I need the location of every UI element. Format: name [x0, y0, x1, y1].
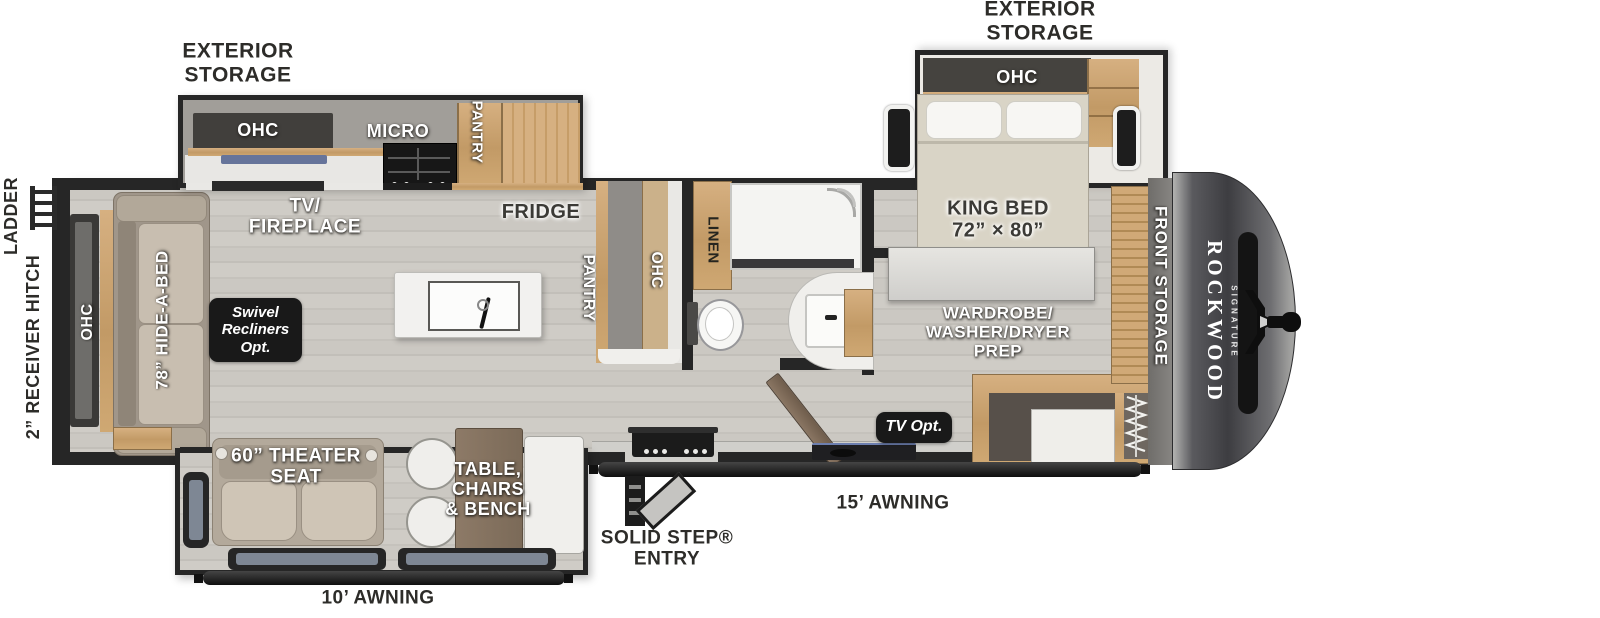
label-dinette: TABLE, CHAIRS & BENCH	[445, 459, 531, 519]
label-kitchen-ohc: OHC	[237, 120, 279, 140]
pillow	[926, 101, 1002, 139]
label-pantry: PANTRY	[468, 101, 485, 164]
label-fridge: FRIDGE	[502, 201, 581, 223]
label-awning-main: 15’ AWNING	[836, 492, 949, 513]
label-hide-a-bed: 78” HIDE-A-BED	[152, 250, 171, 389]
coil-cubby	[1124, 393, 1148, 459]
brand-rockwood: ROCKWOOD	[1202, 240, 1226, 404]
medicine-cabinet	[844, 289, 873, 357]
vanity-sink	[805, 294, 849, 348]
wardrobe-unit	[888, 247, 1095, 301]
awning-main-bracket	[589, 465, 598, 474]
sofa-back	[118, 221, 136, 426]
slide-window-left	[183, 472, 209, 548]
front-storage-cabinet	[1111, 186, 1150, 384]
range-front	[383, 183, 452, 190]
label-rear-ohc: OHC	[79, 303, 97, 340]
exterior-griddle	[632, 429, 714, 457]
shower-glass-door	[732, 259, 854, 268]
label-wardrobe: WARDROBE/ WASHER/DRYER PREP	[926, 303, 1070, 360]
label-awning-rear: 10’ AWNING	[321, 587, 434, 608]
fridge-front	[452, 183, 583, 190]
swivel-recliners-badge: Swivel Recliners Opt.	[209, 298, 302, 362]
galley-white-edge	[668, 181, 682, 363]
ladder-icon	[30, 186, 57, 230]
spring-icon	[1124, 393, 1148, 459]
label-micro: MICRO	[367, 121, 430, 141]
awning-main-bracket	[1141, 465, 1150, 474]
slide-window-bottom-left	[228, 548, 386, 570]
label-front-storage: FRONT STORAGE	[1151, 206, 1170, 366]
island-faucet-base	[477, 299, 489, 311]
label-exterior-storage-front: EXTERIOR STORAGE	[984, 0, 1095, 45]
label-entry: SOLID STEP® ENTRY	[601, 528, 733, 571]
kitchen-island	[394, 272, 542, 338]
label-theater-seat: 60” THEATER SEAT	[231, 446, 361, 489]
awning-rear-bar	[203, 571, 565, 585]
fridge-cabinet	[501, 103, 580, 185]
vanity-faucet	[825, 315, 837, 320]
toilet-bowl	[697, 299, 744, 351]
galley-counter	[608, 181, 642, 363]
pillow	[1006, 101, 1082, 139]
galley-end-cap	[598, 349, 680, 364]
range-grate-line	[388, 171, 450, 173]
label-linen: LINEN	[704, 216, 721, 264]
label-bedroom-ohc: OHC	[996, 67, 1038, 87]
label-tv-fireplace: TV/ FIREPLACE	[249, 196, 361, 239]
bedroom-window-right	[1113, 106, 1140, 170]
tv-fireplace-unit	[212, 181, 324, 191]
front-dresser	[972, 374, 1150, 464]
tv-stand	[830, 449, 856, 457]
awning-rear-bracket	[194, 574, 203, 583]
wall-top-rear	[62, 178, 180, 190]
kitchen-slide	[178, 95, 583, 188]
awning-rear-bracket	[564, 574, 573, 583]
toilet-seat	[705, 307, 734, 341]
rear-end-table	[113, 427, 172, 450]
kitchen-sink	[221, 155, 327, 164]
label-receiver-hitch: 2” RECEIVER HITCH	[23, 255, 43, 440]
dresser-drawer	[1031, 409, 1115, 463]
floorplan: Swivel Recliners Opt.	[0, 0, 1600, 618]
tv-opt-label: TV Opt.	[886, 418, 943, 436]
hitch-coupler-icon	[1243, 288, 1303, 358]
entry-steps	[625, 476, 697, 526]
griddle-lip	[628, 427, 718, 433]
label-ladder: LADDER	[1, 177, 21, 255]
swivel-recliners-label: Swivel Recliners Opt.	[222, 304, 290, 356]
label-king-bed: KING BED 72” × 80”	[947, 198, 1049, 243]
island-sink	[428, 281, 520, 331]
shower-corner-arc	[837, 188, 856, 207]
dresser-divider	[1115, 393, 1124, 461]
bed-fold-line	[918, 141, 1088, 144]
label-exterior-storage-rear: EXTERIOR STORAGE	[182, 39, 293, 86]
label-galley-ohc: OHC	[647, 251, 665, 288]
sofa-back-shelf	[100, 210, 113, 432]
galley-cabinet	[596, 181, 682, 363]
optional-tv	[812, 443, 916, 460]
tv-opt-badge: TV Opt.	[876, 412, 952, 443]
brand-signature: SIGNATURE	[1229, 285, 1238, 359]
range-grate-line	[417, 148, 419, 180]
dinette-bench	[524, 436, 584, 554]
label-galley-pantry: PANTRY	[579, 255, 597, 322]
shower	[730, 183, 862, 270]
bedroom-window-left	[884, 105, 914, 171]
galley-wood-edge	[596, 181, 608, 363]
slide-window-bottom-right	[398, 548, 556, 570]
range-grate-line	[388, 157, 450, 159]
